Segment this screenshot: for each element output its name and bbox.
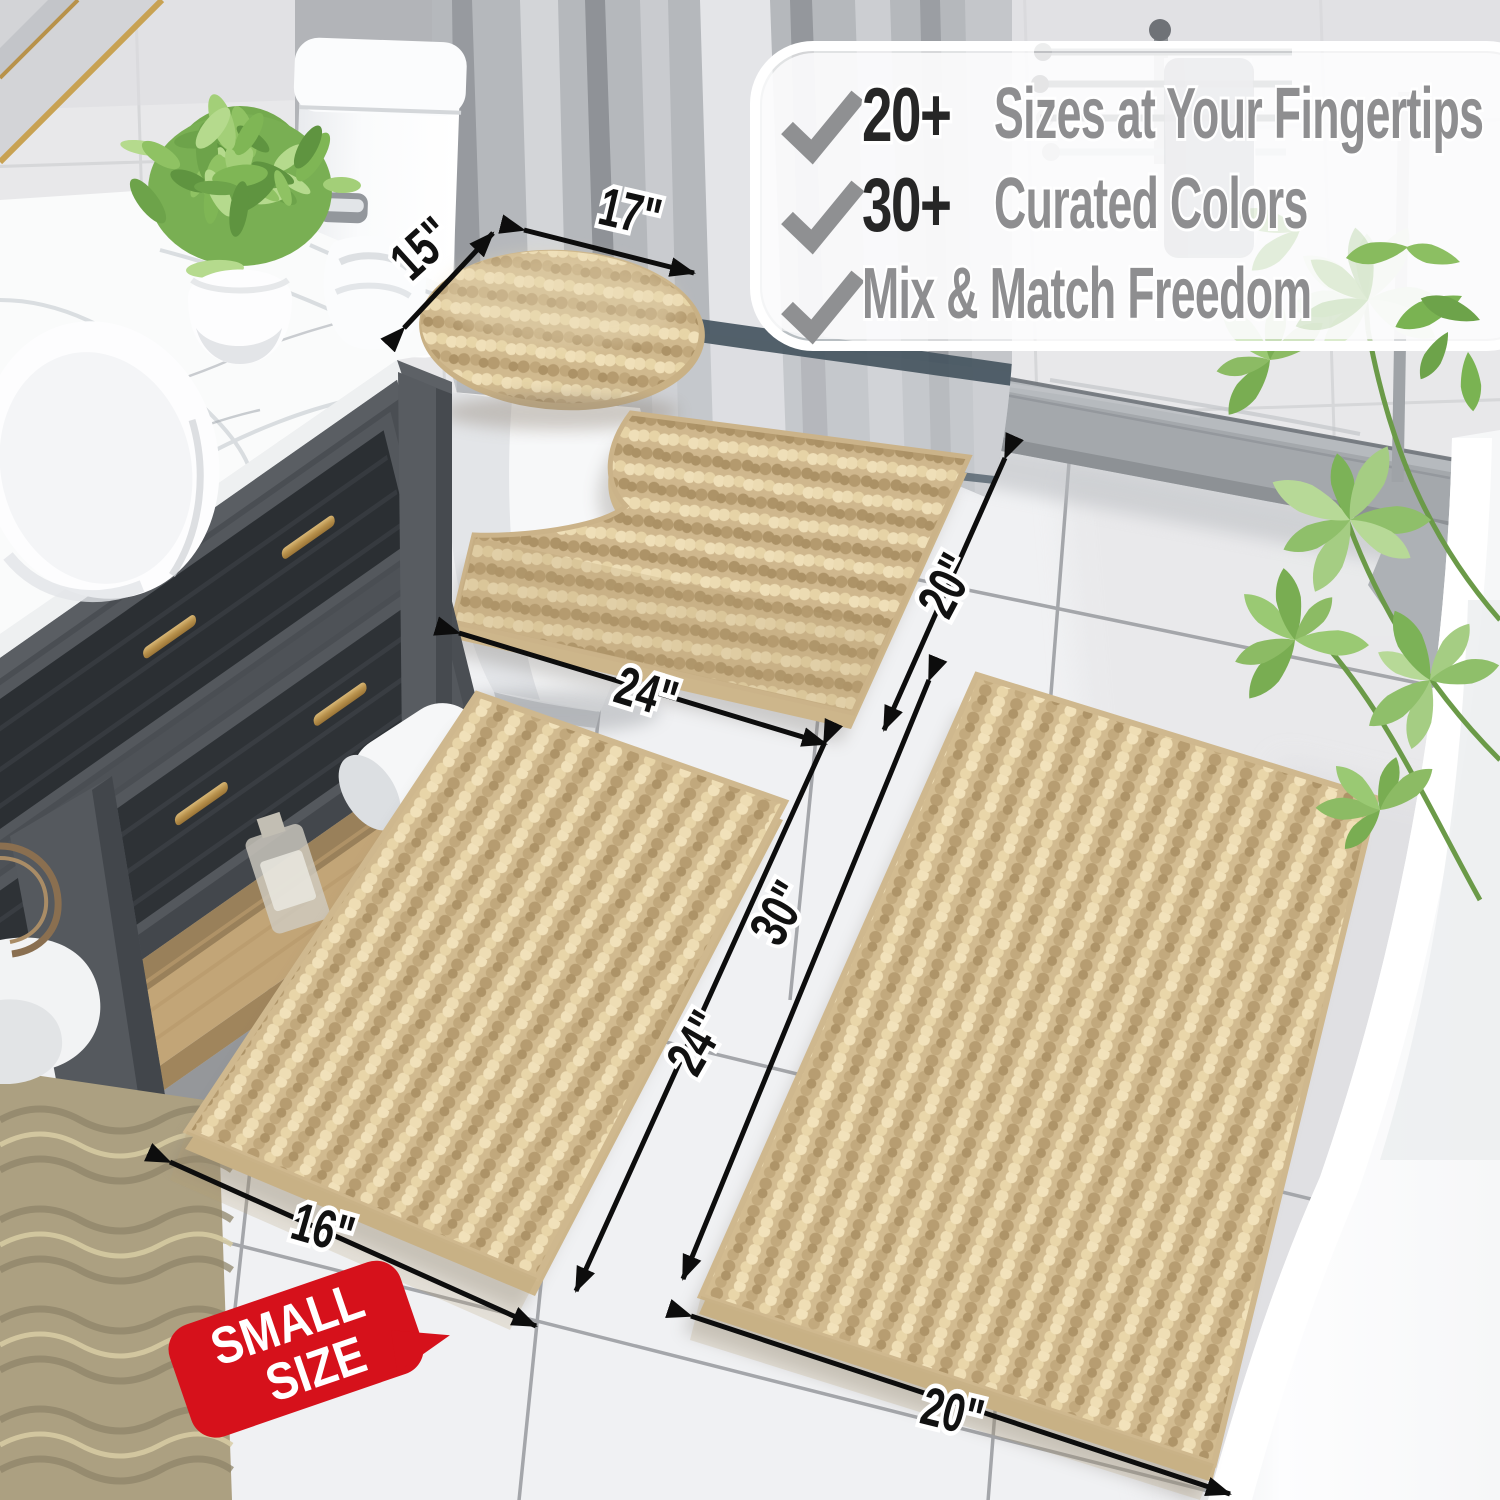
svg-text:30+: 30+ [862,163,951,248]
svg-text:Sizes at Your Fingertips: Sizes at Your Fingertips [994,73,1483,154]
svg-text:Curated Colors: Curated Colors [994,163,1308,244]
svg-text:20+: 20+ [862,73,951,158]
svg-text:Mix & Match Freedom: Mix & Match Freedom [862,253,1311,334]
